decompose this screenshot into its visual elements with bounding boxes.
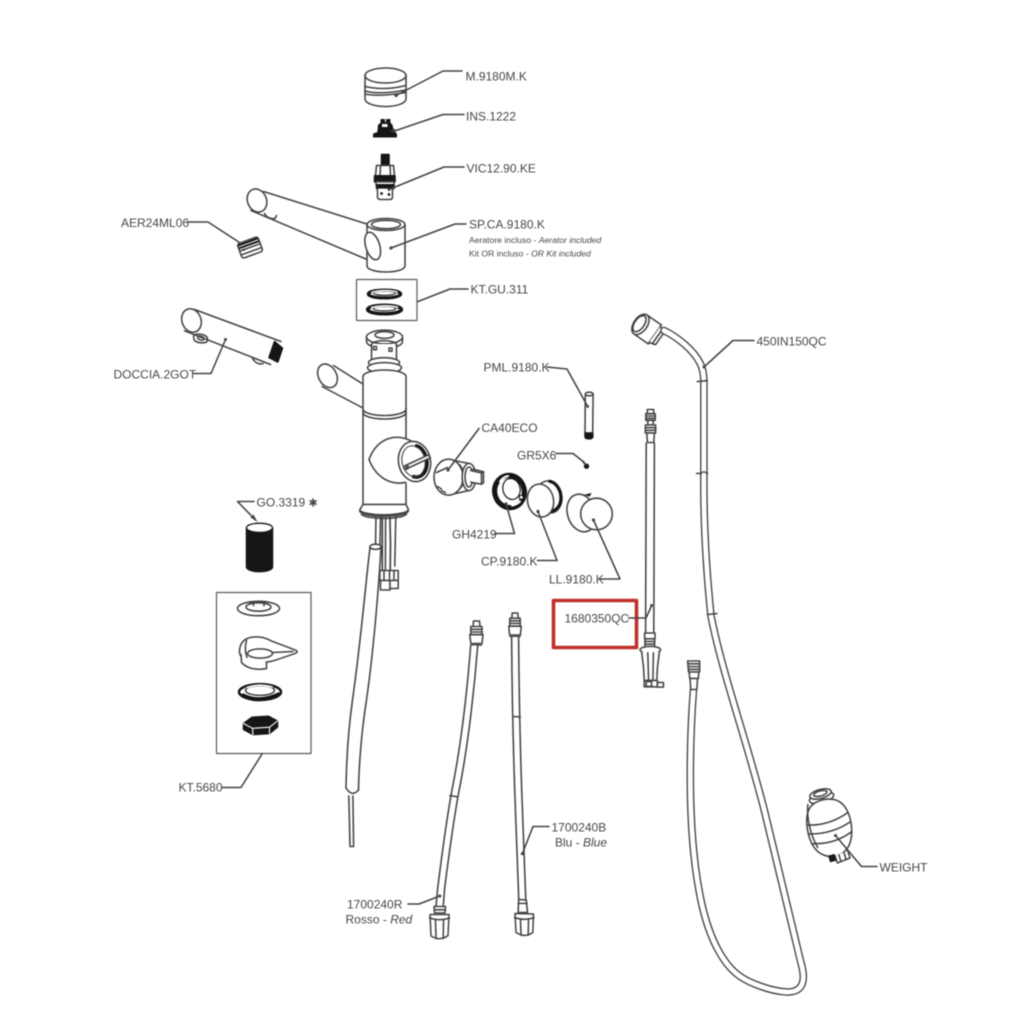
svg-text:LL.9180.K: LL.9180.K <box>549 573 604 587</box>
svg-text:1700240B: 1700240B <box>552 821 607 835</box>
svg-text:GH4219: GH4219 <box>452 528 497 542</box>
svg-text:AER24ML06: AER24ML06 <box>121 216 189 230</box>
svg-text:1700240R: 1700240R <box>347 898 403 912</box>
svg-text:VIC12.90.KE: VIC12.90.KE <box>467 162 536 176</box>
svg-text:WEIGHT: WEIGHT <box>880 861 929 875</box>
svg-text:KT.GU.311: KT.GU.311 <box>471 283 529 297</box>
svg-text:Aeratore incluso - Aerator inc: Aeratore incluso - Aerator included <box>469 235 602 245</box>
svg-text:1680350QC: 1680350QC <box>565 612 630 626</box>
svg-text:INS.1222: INS.1222 <box>466 110 516 124</box>
svg-text:GR5X6: GR5X6 <box>517 449 557 463</box>
svg-text:GO.3319 ✱: GO.3319 ✱ <box>257 496 318 510</box>
svg-text:450IN150QC: 450IN150QC <box>757 335 827 349</box>
svg-text:DOCCIA.2GOT: DOCCIA.2GOT <box>114 368 197 382</box>
svg-text:Rosso - Red: Rosso - Red <box>346 913 413 927</box>
svg-text:SP.CA.9180.K: SP.CA.9180.K <box>469 218 545 232</box>
svg-text:KT.5680: KT.5680 <box>179 781 223 795</box>
svg-text:Blu - Blue: Blu - Blue <box>555 836 607 850</box>
svg-text:PML.9180.K: PML.9180.K <box>484 361 550 375</box>
svg-text:CA40ECO: CA40ECO <box>482 421 538 435</box>
svg-text:CP.9180.K: CP.9180.K <box>481 555 538 569</box>
svg-text:Kit OR incluso - OR Kit includ: Kit OR incluso - OR Kit included <box>469 249 591 259</box>
svg-text:M.9180M.K: M.9180M.K <box>466 70 527 84</box>
